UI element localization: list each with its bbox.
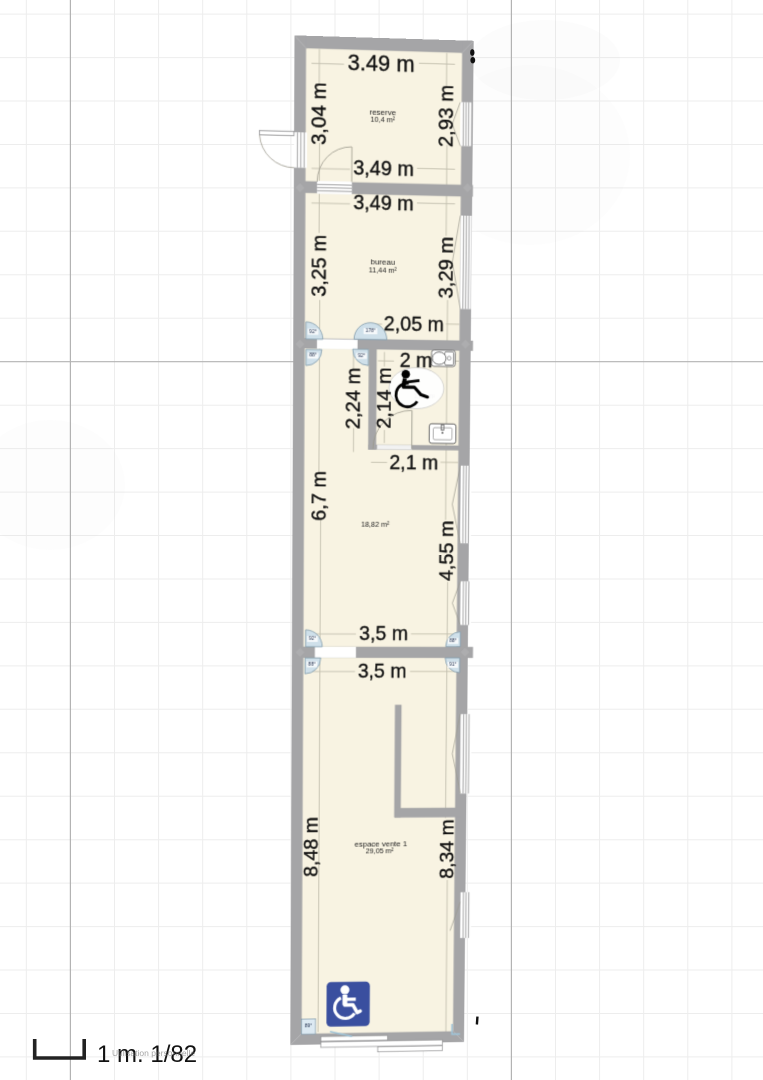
svg-text:6,7 m: 6,7 m [308,471,330,521]
svg-text:3,49 m: 3,49 m [353,191,414,215]
svg-text:89°: 89° [305,1024,312,1030]
svg-text:4,55 m: 4,55 m [436,520,458,581]
svg-text:10,4 m²: 10,4 m² [371,115,396,125]
svg-text:8,48 m: 8,48 m [300,817,322,877]
svg-text:2 m: 2 m [400,349,433,372]
svg-text:91°: 91° [449,662,456,668]
svg-text:2,05 m: 2,05 m [384,312,444,336]
svg-text:2,93 m: 2,93 m [435,85,458,148]
svg-text:3,04 m: 3,04 m [308,82,331,145]
svg-text:3,25 m: 3,25 m [308,234,331,297]
svg-text:3.49 m: 3.49 m [348,50,415,77]
svg-text:92°: 92° [358,353,365,359]
svg-text:3,29 m: 3,29 m [435,236,458,298]
svg-text:18,82 m²: 18,82 m² [361,519,390,528]
svg-text:2,14 m: 2,14 m [373,367,396,429]
svg-text:3,5 m: 3,5 m [359,623,408,645]
svg-text:8,34 m: 8,34 m [436,819,458,879]
svg-text:178°: 178° [365,328,375,334]
svg-text:92°: 92° [309,329,317,335]
svg-text:88°: 88° [449,638,456,644]
svg-text:88°: 88° [309,353,317,359]
svg-text:88°: 88° [308,661,315,667]
svg-text:3,5 m: 3,5 m [358,660,407,682]
svg-text:3,49 m: 3,49 m [353,157,414,181]
svg-text:11,44 m²: 11,44 m² [369,266,397,275]
svg-text:2,24 m: 2,24 m [342,368,365,430]
svg-text:Utilisation personnelle: Utilisation personnelle [112,1048,195,1058]
svg-text:92°: 92° [309,636,316,642]
svg-text:29,05 m²: 29,05 m² [366,847,394,856]
svg-text:2,1 m: 2,1 m [389,451,438,474]
